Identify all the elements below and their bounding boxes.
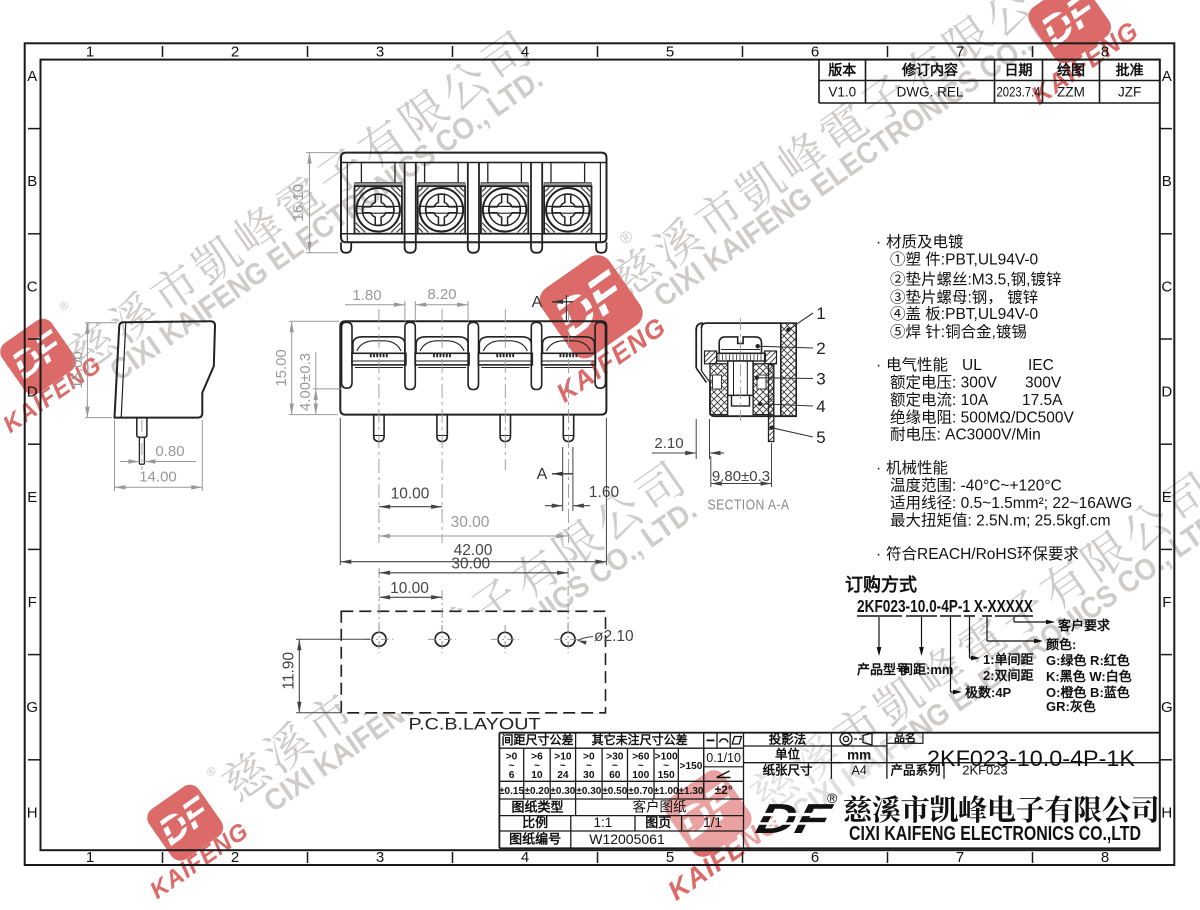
svg-text:耐电压: AC3000V/Min: 耐电压: AC3000V/Min (890, 426, 1041, 444)
svg-text:100: 100 (632, 770, 649, 781)
svg-text:6: 6 (811, 44, 819, 61)
svg-text:SECTION A-A: SECTION A-A (708, 497, 790, 514)
svg-text:0.1/10: 0.1/10 (706, 751, 741, 765)
svg-text:投影法: 投影法 (769, 732, 807, 747)
svg-text:日期: 日期 (1005, 62, 1033, 78)
svg-text:1: 1 (86, 44, 94, 61)
svg-text:DF: DF (752, 796, 837, 843)
svg-text:1.60: 1.60 (589, 484, 620, 501)
svg-text:17.5A: 17.5A (1022, 392, 1063, 409)
svg-text:客户图纸: 客户图纸 (633, 799, 687, 815)
svg-text:2.10: 2.10 (654, 435, 683, 452)
svg-text:额定电流: 10A: 额定电流: 10A (890, 391, 989, 409)
svg-text:1:单间距: 1:单间距 (983, 652, 1034, 667)
svg-text:颜色:: 颜色: (1046, 637, 1076, 652)
svg-text:G:绿色 R:红色: G:绿色 R:红色 (1046, 653, 1130, 668)
svg-text:3: 3 (376, 44, 384, 61)
svg-text:±0.50: ±0.50 (602, 786, 627, 797)
svg-text:H: H (1161, 804, 1172, 821)
svg-text:P.C.B.LAYOUT: P.C.B.LAYOUT (409, 716, 541, 734)
svg-text:±1.30: ±1.30 (679, 786, 704, 797)
svg-text:2KF023: 2KF023 (962, 763, 1008, 778)
svg-text:A: A (532, 294, 543, 311)
svg-text:绘图: 绘图 (1057, 62, 1085, 78)
svg-text:图纸编号: 图纸编号 (509, 832, 561, 847)
svg-text:·: · (876, 357, 881, 374)
svg-text:②垫片螺丝:M3.5,钢,镀锌: ②垫片螺丝:M3.5,钢,镀锌 (890, 270, 1061, 288)
svg-text:B: B (27, 173, 37, 190)
svg-text:>150: >150 (680, 761, 703, 772)
svg-text:4: 4 (521, 44, 529, 61)
svg-text:16.10: 16.10 (290, 184, 307, 222)
svg-text:2: 2 (816, 339, 825, 358)
svg-text:W12005061: W12005061 (589, 831, 665, 847)
svg-text:±1.00: ±1.00 (654, 786, 679, 797)
svg-text:UL: UL (962, 357, 982, 374)
svg-text:ø2.10: ø2.10 (594, 628, 634, 645)
svg-text:2023.7.4: 2023.7.4 (997, 85, 1041, 100)
svg-text:2:双间距: 2:双间距 (983, 668, 1034, 683)
svg-text:①塑 件:PBT,UL94V-0: ①塑 件:PBT,UL94V-0 (890, 251, 1039, 269)
svg-text:品名: 品名 (894, 731, 916, 745)
svg-text:批准: 批准 (1116, 62, 1144, 78)
svg-text:±0.70: ±0.70 (628, 786, 653, 797)
svg-text:客户要求: 客户要求 (1058, 618, 1111, 633)
svg-text:2KF023-10.0-4P-1 X-XXXXX: 2KF023-10.0-4P-1 X-XXXXX (857, 596, 1033, 616)
svg-text:材质及电镀: 材质及电镀 (886, 233, 964, 251)
svg-text:F: F (1162, 594, 1171, 611)
svg-text:±2°: ±2° (715, 783, 733, 797)
svg-text:温度范围: -40°C~+120°C: 温度范围: -40°C~+120°C (890, 477, 1062, 495)
svg-text:G: G (26, 699, 38, 716)
svg-text:修订内容: 修订内容 (901, 62, 958, 78)
svg-text:mm: mm (847, 748, 871, 763)
svg-text:3: 3 (816, 370, 825, 389)
svg-text:D: D (27, 384, 38, 401)
svg-text:5: 5 (666, 849, 674, 866)
svg-text:间距尺寸公差: 间距尺寸公差 (501, 732, 573, 747)
svg-text:DWG. REL: DWG. REL (897, 85, 964, 100)
svg-text:图页: 图页 (645, 815, 671, 830)
svg-text:4: 4 (816, 397, 825, 416)
svg-text:IEC: IEC (1028, 357, 1054, 374)
svg-text:间距:mm: 间距:mm (900, 662, 953, 677)
svg-text:7: 7 (956, 44, 964, 61)
svg-text:30.00: 30.00 (451, 514, 490, 531)
svg-text:6: 6 (811, 849, 819, 866)
svg-text:纸张尺寸: 纸张尺寸 (762, 763, 813, 778)
svg-text:24: 24 (557, 770, 569, 781)
svg-text:C: C (27, 278, 38, 295)
svg-text:单位: 单位 (775, 747, 801, 762)
svg-text:2: 2 (231, 849, 239, 866)
svg-text:C: C (1161, 278, 1172, 295)
svg-text:B: B (1162, 173, 1172, 190)
svg-text:A: A (27, 68, 37, 85)
svg-text:·: · (876, 234, 881, 251)
svg-text:G: G (1161, 699, 1173, 716)
svg-text:A4: A4 (852, 764, 867, 778)
svg-text:10: 10 (531, 770, 543, 781)
svg-text:O:橙色 B:蓝色: O:橙色 B:蓝色 (1046, 685, 1130, 700)
svg-text:F: F (28, 594, 37, 611)
svg-text:H: H (27, 804, 38, 821)
svg-text:A: A (1162, 68, 1172, 85)
svg-text:1: 1 (816, 304, 825, 323)
svg-text:1: 1 (86, 849, 94, 866)
svg-text:极数:4P: 极数:4P (965, 685, 1012, 700)
svg-text:电气性能: 电气性能 (886, 356, 948, 374)
svg-text:1/1: 1/1 (703, 815, 722, 830)
svg-text:·: · (876, 546, 881, 563)
svg-text:额定电压: 300V: 额定电压: 300V (890, 374, 997, 392)
svg-text:7: 7 (956, 849, 964, 866)
svg-text:5: 5 (666, 44, 674, 61)
svg-text:5: 5 (816, 428, 825, 447)
svg-text:3: 3 (376, 849, 384, 866)
svg-text:GR:灰色: GR:灰色 (1046, 699, 1096, 714)
svg-text:9.80±0.3: 9.80±0.3 (712, 468, 770, 485)
svg-text:产品系列: 产品系列 (890, 763, 940, 778)
svg-text:1.80: 1.80 (352, 287, 381, 304)
svg-text:ZZM: ZZM (1057, 85, 1085, 100)
svg-text:2: 2 (231, 44, 239, 61)
svg-text:比例: 比例 (522, 815, 548, 830)
svg-text:其它未注尺寸公差: 其它未注尺寸公差 (592, 732, 688, 747)
svg-text:4: 4 (521, 849, 529, 866)
svg-text:③垫片螺母:钢， 镀锌: ③垫片螺母:钢， 镀锌 (890, 289, 1038, 307)
svg-text:4.00±0.3: 4.00±0.3 (297, 353, 314, 411)
svg-text:0.80: 0.80 (155, 443, 184, 460)
svg-text:10.00: 10.00 (390, 580, 429, 597)
svg-text:绝缘电阻: 500MΩ/DC500V: 绝缘电阻: 500MΩ/DC500V (890, 408, 1075, 426)
svg-text:10.00: 10.00 (391, 486, 430, 503)
svg-text:15.00: 15.00 (69, 351, 86, 389)
svg-text:E: E (27, 489, 37, 506)
svg-text:·: · (876, 460, 881, 477)
svg-text:JZF: JZF (1118, 85, 1141, 100)
svg-text:±0.20: ±0.20 (524, 786, 549, 797)
svg-text:D: D (1161, 384, 1172, 401)
svg-text:8: 8 (1101, 849, 1109, 866)
svg-text:®: ® (827, 790, 838, 806)
svg-text:符合REACH/RoHS环保要求: 符合REACH/RoHS环保要求 (886, 545, 1079, 563)
svg-text:30.00: 30.00 (451, 556, 490, 573)
svg-text:300V: 300V (1025, 375, 1062, 392)
svg-text:±0.30: ±0.30 (550, 786, 575, 797)
svg-text:⑤焊 针:铜合金,镀锡: ⑤焊 针:铜合金,镀锡 (890, 323, 1027, 341)
svg-text:版本: 版本 (828, 62, 857, 78)
svg-text:订购方式: 订购方式 (845, 574, 917, 595)
svg-text:6: 6 (509, 770, 515, 781)
svg-text:2KF023-10.0-4P-1K: 2KF023-10.0-4P-1K (927, 746, 1135, 771)
svg-text:适用线径: 0.5~1.5mm²; 22~16AWG: 适用线径: 0.5~1.5mm²; 22~16AWG (890, 494, 1132, 512)
svg-text:150: 150 (658, 770, 675, 781)
svg-text:±0.30: ±0.30 (576, 786, 601, 797)
svg-text:E: E (1162, 489, 1172, 506)
svg-text:11.90: 11.90 (281, 652, 298, 690)
svg-text:K:黑色 W:白色: K:黑色 W:白色 (1046, 669, 1132, 684)
svg-text:8.20: 8.20 (427, 286, 456, 303)
svg-text:30: 30 (583, 770, 595, 781)
svg-text:15.00: 15.00 (273, 349, 290, 387)
svg-text:8: 8 (1101, 44, 1109, 61)
svg-text:CIXI KAIFENG ELECTRONICS CO.,L: CIXI KAIFENG ELECTRONICS CO.,LTD (849, 823, 1141, 845)
svg-text:1:1: 1:1 (594, 815, 613, 830)
svg-text:14.00: 14.00 (139, 469, 177, 486)
svg-text:60: 60 (609, 770, 621, 781)
svg-text:V1.0: V1.0 (828, 85, 856, 100)
svg-text:图纸类型: 图纸类型 (511, 800, 563, 815)
svg-text:最大扭矩值: 2.5N.m; 25.5kgf.cm: 最大扭矩值: 2.5N.m; 25.5kgf.cm (890, 512, 1111, 530)
svg-text:±0.15: ±0.15 (499, 786, 524, 797)
svg-text:机械性能: 机械性能 (886, 459, 948, 477)
svg-text:④盖 板:PBT,UL94V-0: ④盖 板:PBT,UL94V-0 (890, 305, 1039, 323)
svg-text:A: A (537, 466, 548, 483)
